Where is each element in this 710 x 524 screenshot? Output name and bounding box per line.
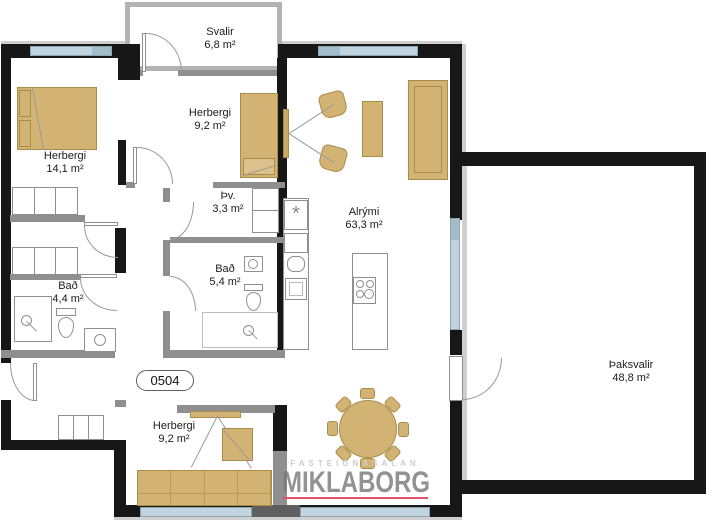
room-area: 4,4 m² [18, 293, 118, 306]
terrace-door-swing [462, 358, 502, 400]
window [300, 507, 430, 517]
room-name: Bað [175, 263, 275, 276]
appliance: * [284, 200, 308, 230]
coffee-table [362, 101, 383, 157]
room-name: Herbergi [124, 420, 224, 433]
window-sash [451, 219, 459, 240]
wall [1, 440, 118, 450]
room-label-thvottahus: Þv. 3,3 m² [178, 190, 278, 216]
wall [163, 350, 285, 358]
window-sash [319, 47, 340, 55]
room-area: 14,1 m² [15, 163, 115, 176]
room-name: Svalir [170, 26, 270, 39]
room-area: 3,3 m² [178, 203, 278, 216]
sofa [137, 470, 272, 506]
sink-basin [94, 334, 106, 346]
wall [170, 237, 285, 243]
room-label-svalir: Svalir 6,8 m² [170, 26, 270, 52]
room-name: Þaksvalir [581, 359, 681, 372]
room-label-thaksvalir: Þaksvalir 48,8 m² [581, 359, 681, 385]
sink-inner [289, 282, 303, 296]
wall [163, 188, 170, 202]
toilet-tank [56, 308, 76, 316]
dining-chair [360, 388, 375, 399]
room-area: 5,4 m² [175, 276, 275, 289]
wardrobe [12, 247, 78, 275]
terrace-door-leaf [449, 356, 463, 401]
wall [252, 505, 300, 517]
dining-chair [327, 421, 338, 436]
terrace-wall [455, 480, 706, 494]
sofa-cushion-line [414, 86, 442, 173]
terrace-wall [694, 152, 706, 494]
wardrobe [58, 415, 104, 440]
room-label-herbergi-nw: Herbergi 14,1 m² [15, 150, 115, 176]
wall [450, 330, 462, 355]
wall [118, 140, 126, 185]
burner [356, 280, 364, 288]
unit-number-badge: 0504 [136, 370, 194, 391]
wardrobe [12, 187, 78, 215]
room-label-herbergi-n: Herbergi 9,2 m² [160, 107, 260, 133]
window-sash [92, 47, 111, 55]
room-area: 63,3 m² [314, 219, 414, 232]
pillow [19, 120, 31, 147]
burner [364, 289, 374, 299]
room-area: 9,2 m² [160, 120, 260, 133]
watermark-brand: MIKLABORG [280, 466, 432, 500]
floor-plan: * Sv [0, 0, 710, 524]
tv-view-line [289, 104, 334, 134]
wall [10, 215, 85, 222]
burner [366, 280, 374, 288]
sofa-seat-line [138, 493, 271, 494]
room-label-herbergi-s: Herbergi 9,2 m² [124, 420, 224, 446]
wall [273, 405, 287, 451]
room-name: Herbergi [15, 150, 115, 163]
toilet-bowl [246, 292, 261, 311]
door-swing [84, 226, 118, 258]
shower-area [202, 312, 278, 348]
armchair [317, 143, 349, 174]
room-area: 6,8 m² [170, 39, 270, 52]
door-swing [137, 147, 173, 184]
wall-outer-edge [114, 517, 462, 520]
room-name: Alrými [314, 206, 414, 219]
watermark-underline [283, 497, 428, 499]
room-area: 9,2 m² [124, 433, 224, 446]
appliance-symbol: * [285, 201, 307, 227]
room-name: Þv. [178, 190, 278, 203]
wall [450, 44, 462, 220]
wall [178, 70, 282, 76]
wall [163, 311, 170, 350]
dining-chair [398, 422, 409, 437]
entrance-door-swing [10, 363, 35, 401]
oven [284, 233, 308, 253]
room-area: 48,8 m² [581, 372, 681, 385]
room-label-alrymi: Alrými 63,3 m² [314, 206, 414, 232]
room-name: Herbergi [160, 107, 260, 120]
wall-outer-edge [462, 44, 466, 152]
toilet-bowl [58, 317, 74, 338]
kitchen-sink [287, 256, 305, 272]
pillow [19, 90, 31, 117]
wall [450, 400, 462, 517]
window [140, 507, 252, 517]
wall [118, 44, 140, 80]
wall [1, 58, 11, 363]
burner [356, 290, 364, 298]
room-name: Bað [18, 280, 118, 293]
wall [115, 400, 126, 407]
room-label-bad-mid: Bað 5,4 m² [175, 263, 275, 289]
terrace-wall [455, 152, 706, 166]
wall [163, 240, 170, 276]
room-label-bad-w: Bað 4,4 m² [18, 280, 118, 306]
wall-outer-edge [462, 166, 467, 480]
